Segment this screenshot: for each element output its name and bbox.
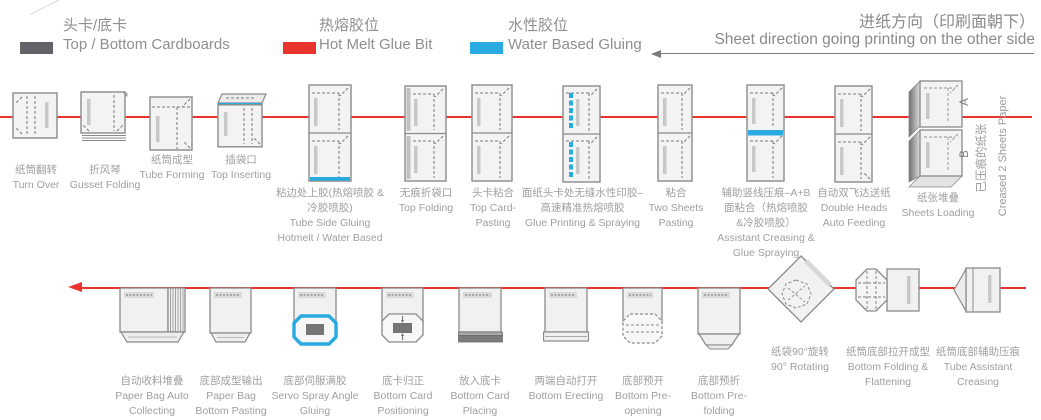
- decorative-line: [30, 0, 63, 15]
- station-label-tube-side-gluing: 粘边处上胶(热熔喷胶 & 冷胶喷胶)Tube Side Gluing Hotme…: [264, 186, 396, 246]
- top-card-pasting-diagram: [471, 84, 514, 183]
- glue-printing-spraying-diagram: [562, 85, 602, 183]
- sheets-loading-diagram: [903, 79, 965, 191]
- station-label-glue-printing: 面纸头卡处无缝水性印胶– 高速精准热熔喷胶Glue Printing & Spr…: [505, 186, 660, 231]
- station-label-top-folding: 无痕折袋口Top Folding: [391, 186, 461, 216]
- process-flow-diagram: 头卡/底卡 Top / Bottom Cardboards 热熔胶位 Hot M…: [0, 0, 1041, 420]
- sheet-b-marker: B: [959, 150, 971, 158]
- servo-spray-gluing-diagram: [292, 287, 338, 353]
- sheet-a-marker: A: [959, 98, 971, 106]
- legend-waterbased-cn: 水性胶位: [508, 14, 568, 35]
- station-label-assistant-creasing: 辅助竖线压痕–A+B 面粘合（热熔喷胶 &冷胶喷胶）Assistant Crea…: [705, 186, 827, 261]
- station-label-bottom-pasting: 底部成型输出Paper Bag Bottom Pasting: [189, 374, 273, 419]
- assistant-creasing-diagram: [746, 84, 786, 183]
- bottom-pre-opening-diagram: [622, 287, 664, 349]
- cardboard-swatch: [20, 42, 53, 54]
- legend-hotmelt-en: Hot Melt Glue Bit: [319, 36, 432, 53]
- station-label-pre-opening: 底部预开Bottom Pre- opening: [603, 374, 683, 419]
- direction-title-cn: 进纸方向（印刷面朝下）: [859, 8, 1035, 32]
- station-label-sheets-loading: 纸张堆叠Sheets Loading: [896, 191, 980, 221]
- station-label-bottom-erecting: 两端自动打开Bottom Erecting: [516, 374, 616, 404]
- station-label-folding-flattening: 纸筒底部拉开成型Bottom Folding & Flattening: [833, 345, 943, 390]
- station-label-tube-forming: 纸筒成型Tube Forming: [135, 153, 209, 183]
- two-sheets-pasting-diagram: [657, 84, 694, 183]
- legend-cardboards-cn: 头卡/底卡: [63, 14, 127, 35]
- station-label-double-heads: 自动双飞达送纸Double Heads Auto Feeding: [814, 186, 894, 231]
- direction-arrow-icon: [651, 50, 661, 58]
- top-folding-diagram: [404, 85, 448, 182]
- station-label-pre-folding: 底部预折Bottom Pre- folding: [679, 374, 759, 419]
- station-label-auto-collecting: 自动收料堆叠Paper Bag Auto Collecting: [107, 374, 197, 419]
- paper-bag-bottom-pasting-diagram: [209, 287, 253, 347]
- bottom-pre-folding-diagram: [696, 287, 742, 351]
- tube-side-gluing-diagram: [308, 84, 353, 183]
- station-label-tube-creasing: 纸筒底部辅助压痕Tube Assistant Creasing: [928, 345, 1028, 390]
- side-note-en: Creased 2 Sheets Paper: [997, 76, 1009, 236]
- gusset-folding-diagram: [80, 91, 128, 143]
- double-heads-auto-feeding-diagram: [834, 85, 874, 183]
- station-label-card-placing: 放入底卡Bottom Card Placing: [435, 374, 525, 419]
- direction-title-en: Sheet direction going printing on the ot…: [714, 31, 1035, 49]
- flow-arrow-left-icon: [68, 282, 82, 292]
- turn-over-diagram: [12, 92, 58, 139]
- station-label-turn-over: 纸筒翻转Turn Over: [6, 163, 66, 193]
- station-label-servo-gluing: 底部伺服满胶Servo Spray Angle Gluing: [265, 374, 365, 419]
- bottom-card-positioning-diagram: [381, 287, 425, 351]
- paper-bag-auto-collecting-diagram: [119, 287, 187, 347]
- bottom-card-placing-diagram: [458, 287, 503, 347]
- bottom-folding-flattening-diagram: [854, 267, 922, 314]
- hotmelt-swatch: [283, 42, 316, 54]
- station-label-two-sheets-pasting: 粘合Two Sheets Pasting: [641, 186, 711, 231]
- tube-assistant-creasing-diagram: [952, 267, 1002, 313]
- direction-line: [660, 53, 1034, 54]
- station-label-top-inserting: 插袋口Top Inserting: [203, 153, 279, 183]
- legend-waterbased-en: Water Based Gluing: [508, 36, 642, 53]
- tube-forming-diagram: [149, 96, 194, 152]
- station-label-rotating: 纸袋90°旋转90° Rotating: [755, 345, 845, 375]
- bottom-erecting-diagram: [543, 287, 589, 346]
- station-label-gusset-folding: 折风琴Gusset Folding: [69, 163, 141, 193]
- rotating-90-diagram: [766, 254, 836, 324]
- legend-cardboards-en: Top / Bottom Cardboards: [63, 36, 230, 53]
- top-inserting-diagram: [216, 92, 268, 150]
- waterbased-swatch: [470, 42, 503, 54]
- legend-hotmelt-cn: 热熔胶位: [319, 14, 379, 35]
